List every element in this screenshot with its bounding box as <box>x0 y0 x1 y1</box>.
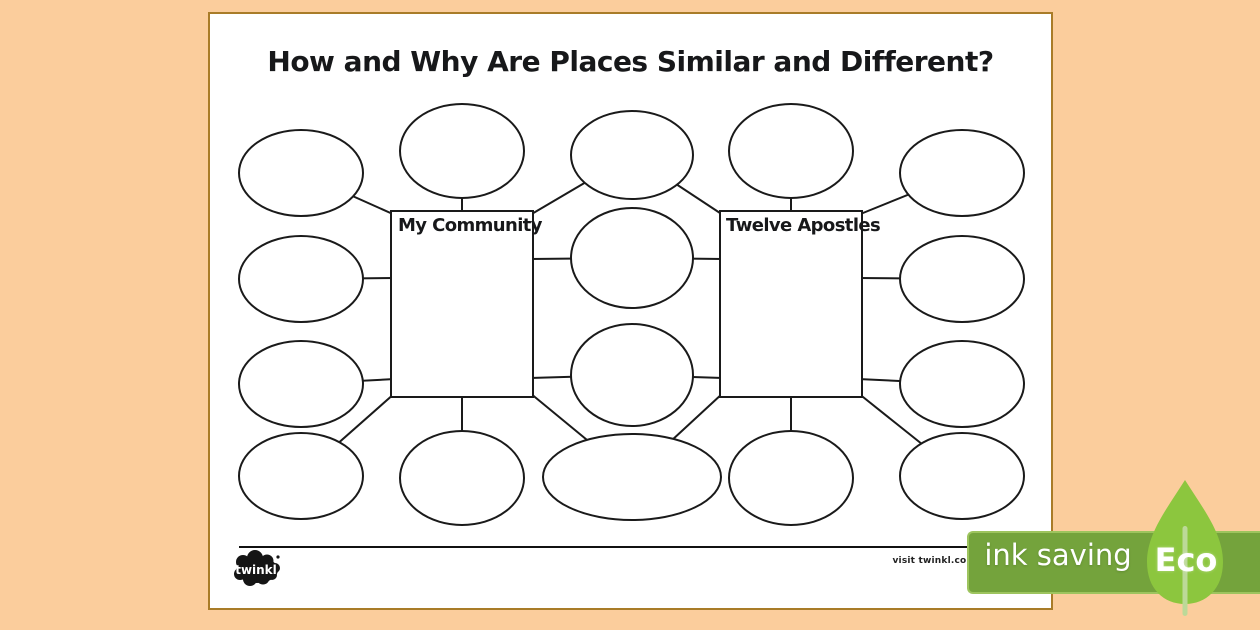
twinkl-logo-text: twinkl <box>235 563 277 577</box>
box-my-community[interactable] <box>391 211 533 397</box>
mind-map-diagram <box>210 14 1051 608</box>
oval-right-2[interactable] <box>900 236 1024 322</box>
oval-left-1[interactable] <box>239 130 363 216</box>
oval-left-2[interactable] <box>239 236 363 322</box>
box-twelve-apostles[interactable] <box>720 211 862 397</box>
oval-left-3[interactable] <box>239 341 363 427</box>
oval-middle-top[interactable] <box>571 111 693 199</box>
oval-left-4[interactable] <box>239 433 363 519</box>
visit-twinkl-text: visit twinkl.com <box>776 556 976 566</box>
oval-above-left-box[interactable] <box>400 104 524 198</box>
twinkl-logo: twinkl <box>232 549 282 591</box>
oval-middle-3[interactable] <box>571 324 693 426</box>
oval-right-3[interactable] <box>900 341 1024 427</box>
oval-middle-2[interactable] <box>571 208 693 308</box>
oval-below-left-box[interactable] <box>400 431 524 525</box>
right-box-label: Twelve Apostles <box>726 215 880 236</box>
footer-divider-line <box>239 546 1023 548</box>
eco-label: Eco <box>1146 541 1226 579</box>
left-box-label: My Community <box>398 215 542 236</box>
oval-below-right-box[interactable] <box>729 431 853 525</box>
ink-saving-label: ink saving <box>983 538 1133 572</box>
worksheet-page: How and Why Are Places Similar and Diffe… <box>208 12 1053 610</box>
oval-right-4[interactable] <box>900 433 1024 519</box>
oval-above-right-box[interactable] <box>729 104 853 198</box>
oval-middle-bottom-wide[interactable] <box>543 434 721 520</box>
oval-right-1[interactable] <box>900 130 1024 216</box>
